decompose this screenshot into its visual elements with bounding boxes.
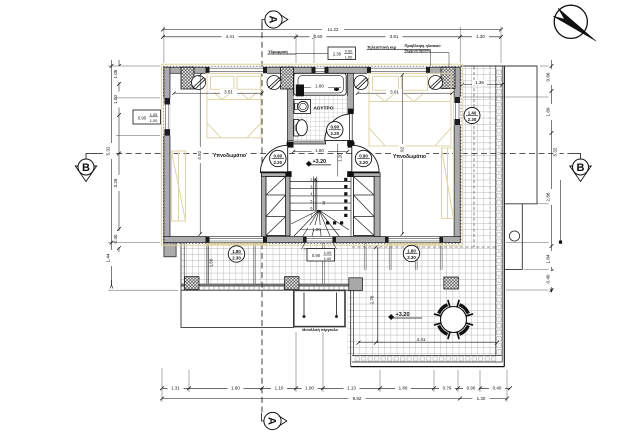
svg-text:11.22: 11.22 bbox=[328, 27, 339, 32]
svg-text:0.66: 0.66 bbox=[546, 72, 551, 81]
svg-text:2.30: 2.30 bbox=[232, 255, 241, 260]
svg-text:0.60: 0.60 bbox=[345, 49, 353, 54]
svg-text:0.40: 0.40 bbox=[546, 274, 551, 283]
svg-text:1.10: 1.10 bbox=[275, 386, 284, 391]
svg-text:0.90: 0.90 bbox=[467, 386, 476, 391]
svg-text:1.05: 1.05 bbox=[150, 112, 158, 117]
svg-text:4.92: 4.92 bbox=[197, 150, 202, 159]
svg-text:1.00: 1.00 bbox=[324, 256, 332, 261]
svg-text:3.26: 3.26 bbox=[113, 178, 118, 187]
svg-text:A: A bbox=[267, 16, 279, 24]
svg-text:0.90: 0.90 bbox=[359, 153, 368, 158]
svg-text:ΛΟΥΤΡΟ: ΛΟΥΤΡΟ bbox=[313, 106, 333, 112]
svg-text:Υδρορροή: Υδρορροή bbox=[268, 49, 288, 54]
svg-text:Μεταλλική πέργκολα: Μεταλλική πέργκολα bbox=[302, 328, 338, 332]
svg-text:1.00: 1.00 bbox=[113, 95, 118, 104]
svg-text:+3.20: +3.20 bbox=[396, 312, 410, 318]
svg-text:2.76: 2.76 bbox=[370, 295, 375, 304]
svg-text:2.30: 2.30 bbox=[333, 51, 342, 56]
svg-text:1.40: 1.40 bbox=[468, 110, 477, 115]
svg-text:0.90: 0.90 bbox=[138, 115, 147, 120]
svg-text:5.32: 5.32 bbox=[552, 147, 557, 156]
svg-text:1.31: 1.31 bbox=[171, 386, 180, 391]
svg-text:4.41: 4.41 bbox=[417, 337, 426, 342]
svg-text:8.92: 8.92 bbox=[353, 396, 362, 401]
svg-text:1.13: 1.13 bbox=[347, 386, 356, 391]
svg-text:1.80: 1.80 bbox=[407, 248, 416, 253]
svg-text:1.80: 1.80 bbox=[232, 249, 241, 254]
svg-text:Υπνοδωμάτιο: Υπνοδωμάτιο bbox=[213, 153, 246, 159]
svg-text:5: 5 bbox=[310, 199, 312, 203]
svg-text:5.32: 5.32 bbox=[106, 146, 111, 155]
svg-text:0.90: 0.90 bbox=[312, 253, 321, 258]
svg-text:1.80: 1.80 bbox=[399, 386, 408, 391]
svg-text:1.80: 1.80 bbox=[315, 148, 324, 153]
svg-text:2.20: 2.20 bbox=[359, 160, 368, 165]
svg-text:3: 3 bbox=[310, 185, 312, 189]
svg-text:0.40: 0.40 bbox=[493, 386, 502, 391]
svg-text:1.50: 1.50 bbox=[208, 258, 213, 267]
svg-text:3.91: 3.91 bbox=[390, 34, 399, 39]
svg-text:+3.20: +3.20 bbox=[313, 159, 327, 165]
svg-text:1.06: 1.06 bbox=[113, 69, 118, 78]
svg-text:4: 4 bbox=[310, 192, 312, 196]
svg-text:1.00: 1.00 bbox=[150, 118, 158, 123]
svg-text:1.36: 1.36 bbox=[475, 80, 484, 85]
svg-text:3.51: 3.51 bbox=[224, 90, 233, 95]
svg-text:1.30: 1.30 bbox=[476, 34, 485, 39]
svg-text:4.41: 4.41 bbox=[226, 34, 235, 39]
svg-text:Τηλεοπτική κερ: Τηλεοπτική κερ bbox=[367, 45, 397, 50]
svg-text:0.90: 0.90 bbox=[331, 125, 340, 130]
svg-text:0.60: 0.60 bbox=[314, 34, 323, 39]
svg-text:1.00: 1.00 bbox=[312, 227, 321, 232]
svg-text:2.20: 2.20 bbox=[274, 160, 283, 165]
svg-text:A: A bbox=[266, 417, 278, 425]
svg-text:0.90: 0.90 bbox=[274, 153, 283, 158]
svg-text:16: 16 bbox=[322, 201, 326, 205]
svg-text:B: B bbox=[82, 162, 90, 174]
svg-text:1.80: 1.80 bbox=[315, 83, 324, 88]
svg-text:1.84: 1.84 bbox=[546, 254, 551, 263]
svg-text:Υπνοδωμάτιο: Υπνοδωμάτιο bbox=[393, 154, 426, 160]
svg-text:0.79: 0.79 bbox=[443, 386, 452, 391]
svg-text:2.30: 2.30 bbox=[407, 255, 416, 260]
svg-text:3.01: 3.01 bbox=[390, 90, 399, 95]
svg-text:2.30: 2.30 bbox=[468, 117, 477, 122]
svg-text:θερμοσίφωνα: θερμοσίφωνα bbox=[405, 48, 432, 53]
svg-text:1.44: 1.44 bbox=[106, 253, 111, 262]
svg-text:1.89: 1.89 bbox=[546, 107, 551, 116]
svg-text:1.80: 1.80 bbox=[231, 386, 240, 391]
svg-text:1.60: 1.60 bbox=[345, 54, 353, 59]
svg-text:1.00: 1.00 bbox=[305, 386, 314, 391]
svg-text:1.00: 1.00 bbox=[324, 250, 332, 255]
svg-text:2.86: 2.86 bbox=[546, 192, 551, 201]
svg-text:2.20: 2.20 bbox=[331, 131, 340, 136]
svg-text:6: 6 bbox=[310, 207, 312, 211]
svg-text:B: B bbox=[577, 162, 585, 174]
svg-text:1.30: 1.30 bbox=[477, 396, 486, 401]
svg-text:0.40: 0.40 bbox=[113, 234, 118, 243]
svg-text:7: 7 bbox=[310, 214, 312, 218]
svg-text:2: 2 bbox=[310, 178, 312, 182]
svg-text:1.20: 1.20 bbox=[338, 153, 343, 162]
